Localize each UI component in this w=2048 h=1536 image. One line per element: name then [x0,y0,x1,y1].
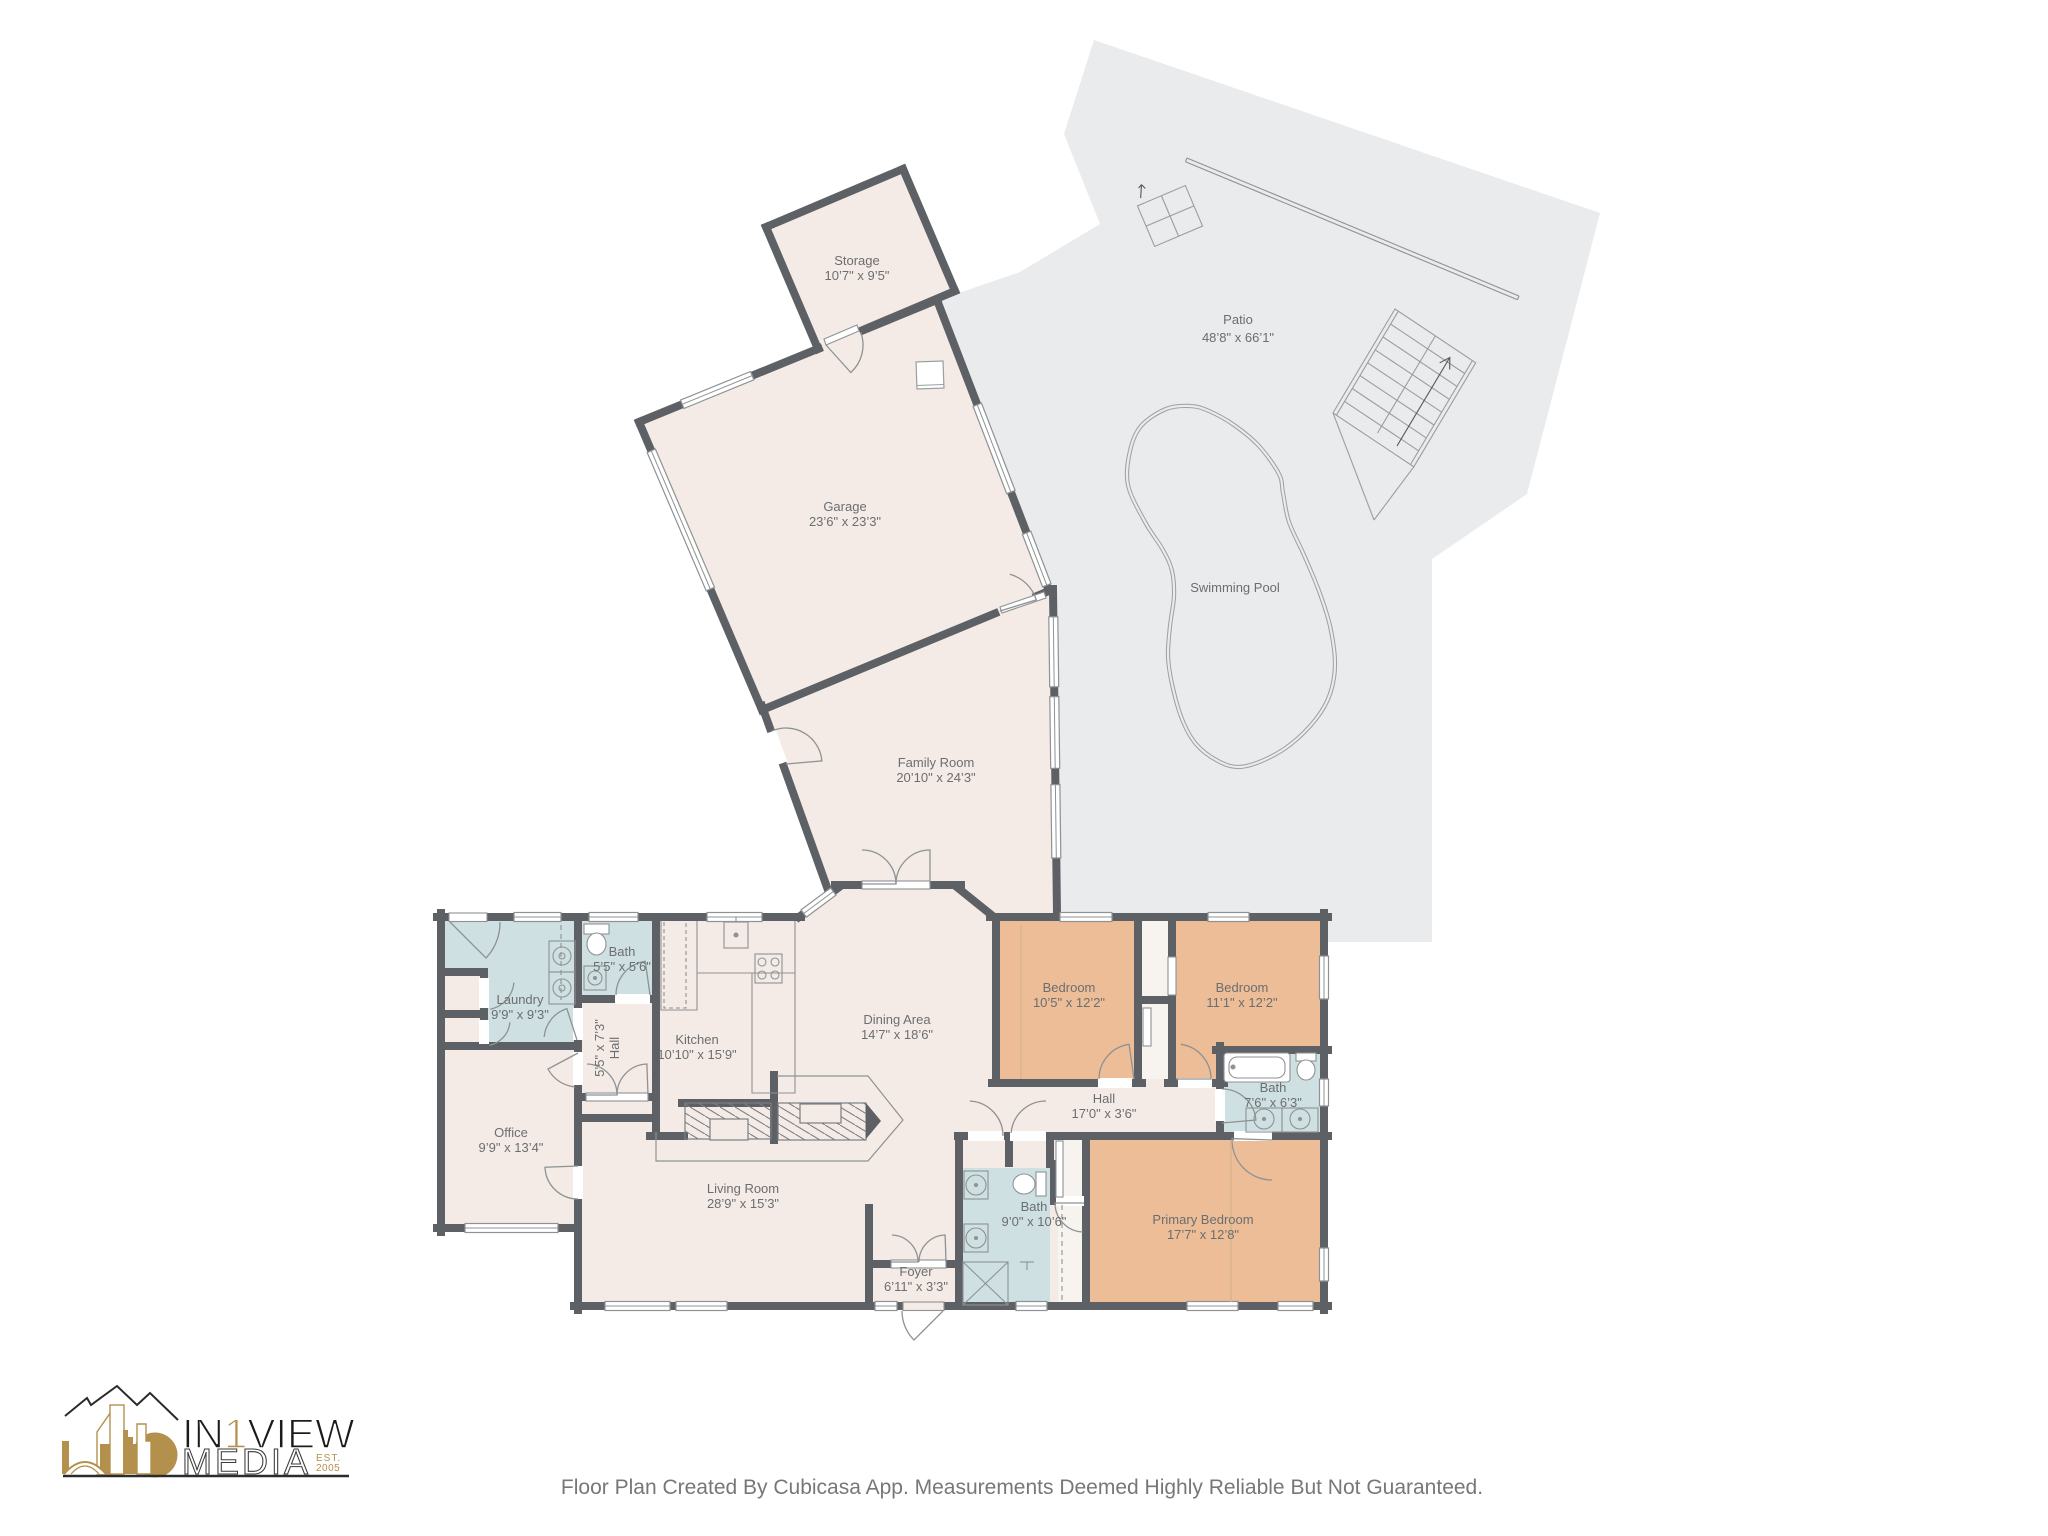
svg-text:Office: Office [494,1125,528,1140]
svg-text:Dining Area: Dining Area [863,1012,931,1027]
svg-text:Bedroom: Bedroom [1043,980,1096,995]
svg-text:28’9" x 15’3": 28’9" x 15’3" [707,1196,779,1211]
svg-text:20’10" x 24’3": 20’10" x 24’3" [896,770,976,785]
svg-text:Swimming Pool: Swimming Pool [1190,580,1280,595]
svg-text:48’8" x 66’1": 48’8" x 66’1" [1202,330,1274,345]
svg-text:10’10" x 15’9": 10’10" x 15’9" [657,1047,737,1062]
svg-text:Hall: Hall [607,1037,622,1060]
svg-text:Bath: Bath [609,944,636,959]
svg-text:Floor Plan Created By Cubicasa: Floor Plan Created By Cubicasa App. Meas… [561,1476,1483,1499]
svg-text:10’5" x 12’2": 10’5" x 12’2" [1033,995,1105,1010]
svg-text:Foyer: Foyer [899,1264,933,1279]
svg-text:5’5" x 7’3": 5’5" x 7’3" [592,1019,607,1077]
svg-text:Primary Bedroom: Primary Bedroom [1152,1212,1253,1227]
svg-text:Hall: Hall [1093,1091,1116,1106]
svg-text:9’9" x 9’3": 9’9" x 9’3" [491,1007,549,1022]
svg-text:Patio: Patio [1223,312,1253,327]
svg-text:MEDIA: MEDIA [182,1441,311,1482]
svg-text:6’11" x 3’3": 6’11" x 3’3" [884,1279,948,1294]
svg-text:7’6" x 6’3": 7’6" x 6’3" [1244,1095,1302,1110]
svg-text:Storage: Storage [834,253,880,268]
svg-text:23’6" x 23’3": 23’6" x 23’3" [809,514,881,529]
svg-text:Laundry: Laundry [497,992,544,1007]
svg-text:10’7" x 9’5": 10’7" x 9’5" [825,268,890,283]
svg-text:14’7" x 18’6": 14’7" x 18’6" [861,1027,933,1042]
svg-text:Bath: Bath [1021,1199,1048,1214]
svg-text:Bedroom: Bedroom [1216,980,1269,995]
svg-text:Family Room: Family Room [898,755,975,770]
svg-text:9’0" x 10’6": 9’0" x 10’6" [1002,1214,1067,1229]
svg-text:17’0" x 3’6": 17’0" x 3’6" [1072,1106,1137,1121]
svg-text:Kitchen: Kitchen [675,1032,718,1047]
svg-text:17’7" x 12’8": 17’7" x 12’8" [1167,1227,1239,1242]
svg-text:9’9" x 13’4": 9’9" x 13’4" [479,1140,544,1155]
svg-text:Living Room: Living Room [707,1181,779,1196]
svg-text:2005: 2005 [316,1463,340,1474]
svg-text:Garage: Garage [823,499,866,514]
svg-text:Bath: Bath [1260,1080,1287,1095]
svg-text:5’5" x 5’6": 5’5" x 5’6" [593,959,651,974]
svg-text:11’1" x 12’2": 11’1" x 12’2" [1206,995,1278,1010]
